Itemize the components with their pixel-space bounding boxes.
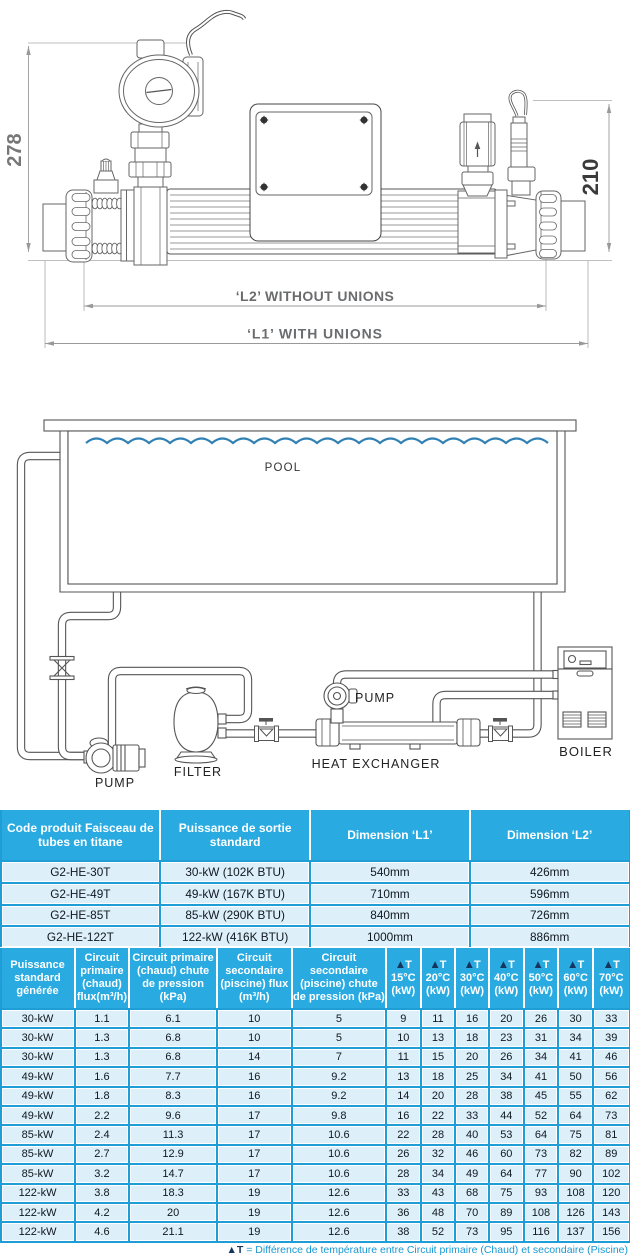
svg-text:210: 210 [578, 159, 603, 196]
svg-text:POOL: POOL [265, 462, 302, 474]
svg-text:278: 278 [4, 133, 26, 166]
svg-text:PUMP: PUMP [95, 776, 135, 790]
svg-text:HEAT EXCHANGER: HEAT EXCHANGER [312, 757, 441, 771]
svg-text:FILTER: FILTER [174, 765, 222, 779]
svg-text:BOILER: BOILER [559, 744, 613, 759]
svg-text:PUMP: PUMP [355, 691, 395, 705]
svg-text:‘L1’ WITH UNIONS: ‘L1’ WITH UNIONS [247, 326, 383, 342]
svg-text:‘L2’ WITHOUT UNIONS: ‘L2’ WITHOUT UNIONS [236, 288, 395, 304]
